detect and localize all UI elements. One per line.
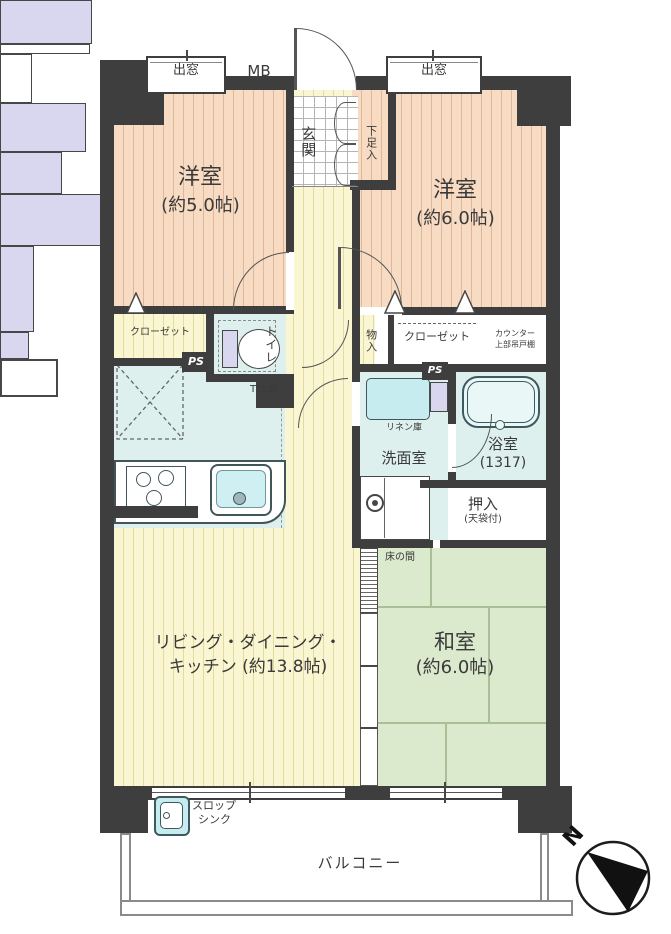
kitchen-faucet: [233, 492, 246, 505]
label-linen: リネン庫: [376, 423, 432, 433]
label-storage: 物入: [364, 321, 377, 361]
opening-washroom-door: [352, 382, 360, 426]
closet-right-box: [0, 103, 86, 152]
label-tokonoma: 床の間: [372, 552, 428, 564]
label-shoe-box: 下足入: [364, 110, 377, 176]
ps-badge-right: PS: [422, 362, 448, 380]
label-toilet: トイレ: [263, 316, 277, 372]
label-washitsu-name: 和室: [392, 630, 518, 654]
shoebox-door-arc: [334, 102, 356, 144]
wall-washroom-bottom: [352, 540, 546, 548]
label-bathroom-size: (1317): [460, 455, 546, 471]
closet-left-door-track: [0, 44, 90, 54]
slop-sink-drain: [163, 812, 170, 819]
label-balcony: バルコニー: [290, 855, 430, 872]
label-slop-sink-line2: シンク: [198, 814, 258, 827]
floorplan-canvas: PS PS 洋室 (約5.0帖) 洋室 (約6.0帖) リビング・ダイニング・ …: [0, 0, 671, 934]
wall-right: [546, 76, 560, 800]
balcony-rail-left: [120, 833, 131, 903]
linen-cabinet: [430, 382, 448, 412]
entrance-door-leaf: [294, 28, 297, 90]
label-bay-window-left: 出窓: [146, 64, 226, 79]
balcony-rail-right: [540, 833, 549, 903]
label-bay-window-right: 出窓: [386, 64, 482, 79]
stove-burner: [136, 472, 151, 487]
shoe-cabinet-box: [0, 246, 34, 332]
bifold-mark-closet-right: [384, 290, 406, 314]
sliding-door-tick: [360, 727, 378, 729]
wall-closet-row-bottom: [352, 364, 546, 372]
ps-badge-left: PS: [182, 352, 210, 372]
storage-box: [0, 54, 32, 103]
pillar-bottom-left: [100, 786, 148, 833]
label-western5-name: 洋室: [125, 165, 275, 190]
vanity: [366, 378, 430, 420]
label-western6-size: (約6.0帖): [378, 209, 533, 230]
tatami-line: [430, 548, 432, 606]
shoebox-door-arc: [334, 144, 356, 186]
tel-stand-box: [0, 332, 29, 359]
bifold-mark-closet-right: [454, 290, 476, 314]
tatami-line: [378, 606, 546, 608]
label-counter-line2: 上部吊戸棚: [485, 340, 545, 349]
bathtub-drain: [495, 420, 505, 430]
counter-cabinet-box: [0, 152, 62, 194]
label-ldk-line1: リビング・ダイニング・: [128, 634, 368, 654]
closet-left-box: [0, 0, 92, 44]
balcony-rail-bottom: [120, 900, 573, 916]
window-washitsu-tick: [444, 782, 446, 803]
wall-entrance-right: [388, 90, 396, 190]
refrigerator-space-x-box: [116, 364, 184, 440]
washer-pan-divider: [384, 478, 385, 538]
label-washitsu-size: (約6.0帖): [384, 658, 526, 679]
wall-left: [100, 76, 114, 800]
label-closet-left: クローゼット: [115, 327, 205, 339]
western6-door-leaf: [338, 247, 341, 309]
wall-bath-bottom: [420, 480, 546, 488]
label-oshiire: 押入: [428, 496, 538, 513]
window-washitsu-balcony: [390, 786, 502, 800]
stove-burner: [158, 470, 174, 486]
label-counter-line1: カウンター: [485, 329, 545, 338]
entrance-step-line: [292, 186, 358, 187]
label-western6-name: 洋室: [390, 178, 520, 203]
label-tel-stand: TEL台: [234, 384, 294, 396]
label-meter-box: MB: [230, 63, 288, 80]
label-entrance: 玄関: [299, 112, 316, 172]
pillar-top-right: [517, 76, 571, 126]
toilet-tank: [222, 330, 238, 368]
stove-burner: [146, 490, 162, 506]
label-oshiire-note: (天袋付): [428, 514, 538, 526]
label-ldk-line2: キッチン (約13.8帖): [128, 658, 368, 678]
bay-right-tick: [432, 50, 434, 61]
tatami-line: [378, 722, 546, 724]
closet-right-dashed: [398, 323, 476, 324]
bifold-mark-closet-left: [126, 292, 146, 314]
bay-left-tick: [186, 50, 188, 61]
label-closet-right: クローゼット: [394, 331, 480, 344]
label-western5-size: (約5.0帖): [113, 196, 288, 217]
meter-box: [0, 359, 58, 397]
opening-oshiire-tick: [433, 540, 440, 548]
wall-toilet-bottom: [206, 374, 294, 382]
kitchen-half-wall: [114, 506, 198, 518]
label-washroom: 洗面室: [361, 450, 447, 467]
tatami-line: [445, 722, 447, 786]
entrance-door-arc: [296, 28, 357, 90]
label-slop-sink-line1: スロップ: [192, 800, 252, 813]
label-bathroom: 浴室: [462, 436, 544, 453]
washer-drain-dot: [372, 500, 378, 506]
